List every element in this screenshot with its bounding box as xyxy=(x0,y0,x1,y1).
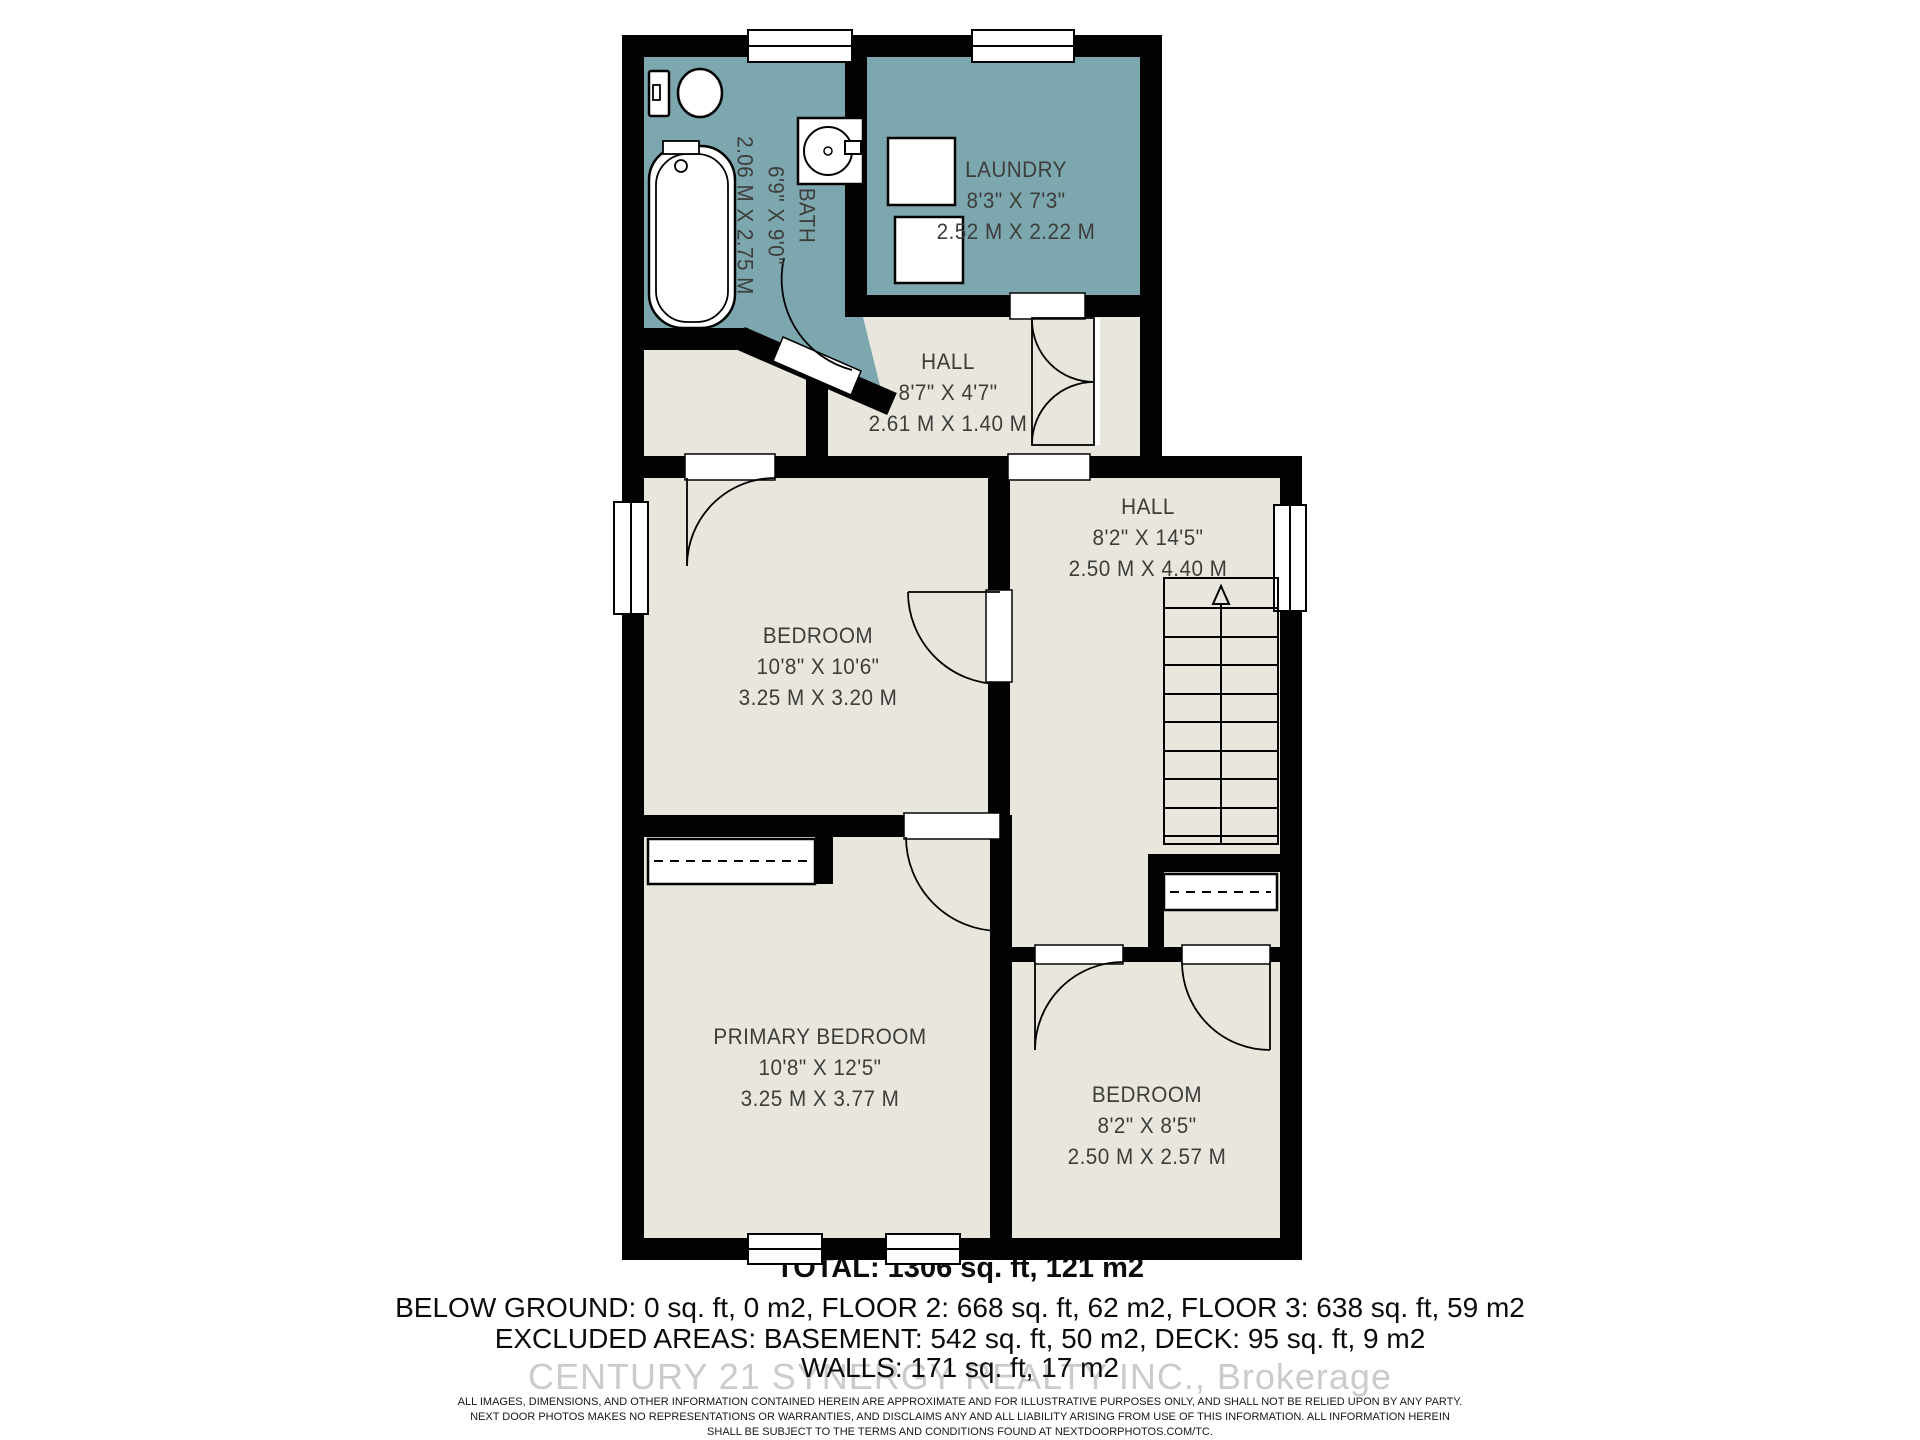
toilet-icon xyxy=(649,69,722,117)
room-name: HALL xyxy=(845,346,1052,377)
room-dims-metric: 3.25 M X 3.77 M xyxy=(679,1083,961,1114)
room-name: PRIMARY BEDROOM xyxy=(679,1021,961,1052)
room-name: LAUNDRY xyxy=(913,154,1120,185)
bedroom-right-door-opening xyxy=(986,590,1012,682)
primary-bedroom-label: PRIMARY BEDROOM 10'8" X 12'5" 3.25 M X 3… xyxy=(679,1021,961,1114)
bedroom-lower-label: BEDROOM 8'2" X 8'5" 2.50 M X 2.57 M xyxy=(1034,1079,1260,1172)
laundry-window xyxy=(972,30,1074,62)
primary-window-right xyxy=(886,1234,960,1264)
bedroom-door-opening xyxy=(685,454,775,480)
primary-window-left xyxy=(748,1234,822,1264)
bath-label: BATH 6'9" X 9'0" 2.06 M X 2.75 M xyxy=(730,131,823,300)
room-dims-imperial: 8'7" X 4'7" xyxy=(845,377,1052,408)
disclaimer-line-1: ALL IMAGES, DIMENSIONS, AND OTHER INFORM… xyxy=(0,1396,1920,1409)
room-dims-metric: 2.06 M X 2.75 M xyxy=(730,131,761,300)
closet-strip-floor xyxy=(1098,317,1140,458)
walls-area-text: WALLS: 171 sq. ft, 17 m2 xyxy=(0,1352,1920,1384)
room-dims-imperial: 8'2" X 14'5" xyxy=(1035,522,1261,553)
room-dims-imperial: 10'8" X 10'6" xyxy=(705,651,931,682)
bedroom-middle-label: BEDROOM 10'8" X 10'6" 3.25 M X 3.20 M xyxy=(705,620,931,713)
room-dims-imperial: 6'9" X 9'0" xyxy=(761,131,792,300)
room-name: BEDROOM xyxy=(705,620,931,651)
room-name: HALL xyxy=(1035,491,1261,522)
bath-window xyxy=(748,30,852,62)
room-dims-metric: 2.61 M X 1.40 M xyxy=(845,408,1052,439)
floor-areas-text: BELOW GROUND: 0 sq. ft, 0 m2, FLOOR 2: 6… xyxy=(0,1292,1920,1324)
floor-plan-page: TOTAL: 1306 sq. ft, 121 m2 xyxy=(0,0,1920,1440)
room-name: BEDROOM xyxy=(1034,1079,1260,1110)
room-name: BATH xyxy=(792,131,823,300)
room-dims-metric: 2.52 M X 2.22 M xyxy=(913,216,1120,247)
room-dims-metric: 2.50 M X 4.40 M xyxy=(1035,553,1261,584)
hall-passage-opening xyxy=(1008,454,1090,480)
bathtub-icon xyxy=(649,141,735,328)
hall-upper-label: HALL 8'7" X 4'7" 2.61 M X 1.40 M xyxy=(845,346,1052,439)
room-dims-imperial: 8'3" X 7'3" xyxy=(913,185,1120,216)
disclaimer-line-3: SHALL BE SUBJECT TO THE TERMS AND CONDIT… xyxy=(0,1426,1920,1439)
room-dims-metric: 2.50 M X 2.57 M xyxy=(1034,1141,1260,1172)
laundry-door-opening xyxy=(1010,293,1085,319)
disclaimer-line-2: NEXT DOOR PHOTOS MAKES NO REPRESENTATION… xyxy=(0,1411,1920,1424)
lower-bedroom-door2-opening xyxy=(1182,945,1270,964)
primary-closet xyxy=(648,839,815,884)
excluded-areas-text: EXCLUDED AREAS: BASEMENT: 542 sq. ft, 50… xyxy=(0,1323,1920,1355)
room-dims-metric: 3.25 M X 3.20 M xyxy=(705,682,931,713)
room-dims-imperial: 10'8" X 12'5" xyxy=(679,1052,961,1083)
laundry-label: LAUNDRY 8'3" X 7'3" 2.52 M X 2.22 M xyxy=(913,154,1120,247)
lower-bedroom-door1-opening xyxy=(1035,945,1123,964)
hall-stairs-label: HALL 8'2" X 14'5" 2.50 M X 4.40 M xyxy=(1035,491,1261,584)
stairs-closet xyxy=(1164,874,1277,910)
closet-jamb xyxy=(1094,318,1100,445)
primary-door-opening xyxy=(904,813,1000,839)
bedroom-window xyxy=(614,502,648,614)
room-dims-imperial: 8'2" X 8'5" xyxy=(1034,1110,1260,1141)
